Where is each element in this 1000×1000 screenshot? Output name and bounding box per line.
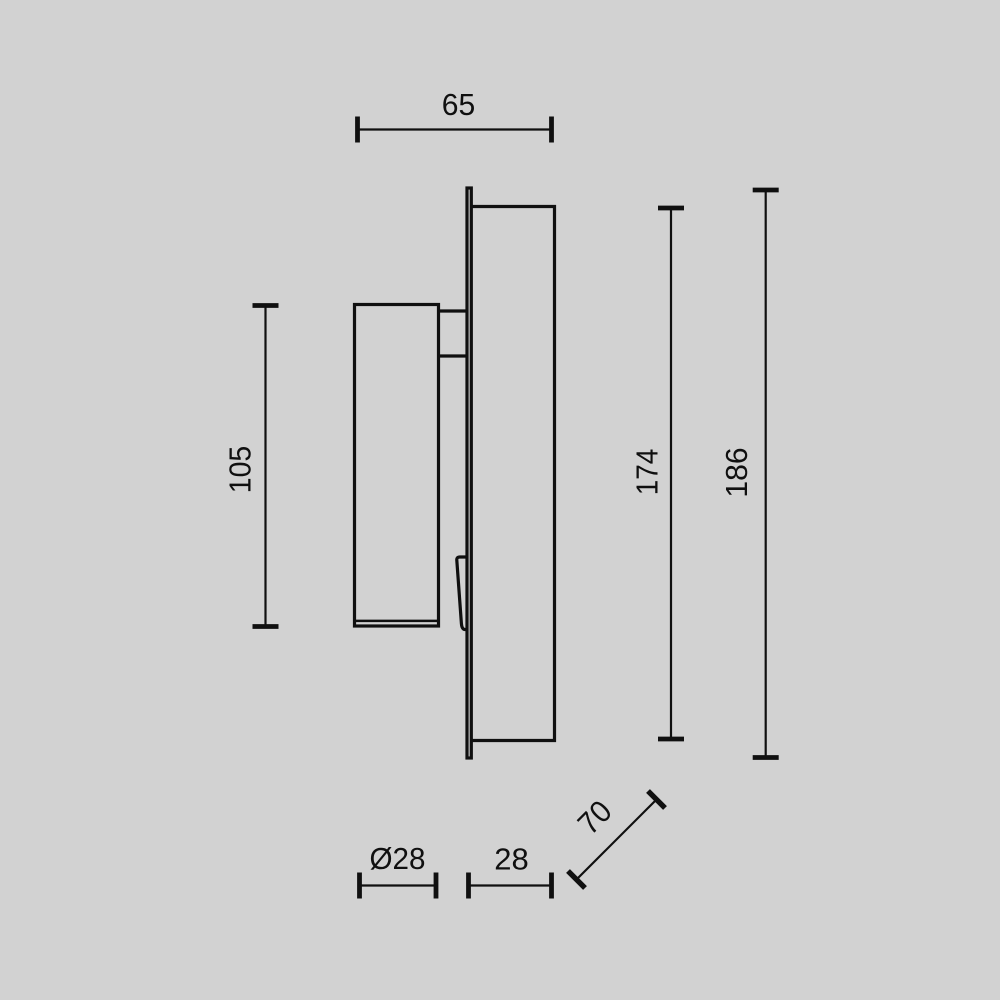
svg-text:105: 105: [223, 446, 258, 494]
svg-text:174: 174: [630, 449, 665, 496]
svg-text:65: 65: [442, 87, 476, 122]
svg-text:Ø28: Ø28: [370, 841, 426, 876]
svg-text:186: 186: [719, 447, 754, 497]
svg-text:28: 28: [494, 842, 528, 877]
